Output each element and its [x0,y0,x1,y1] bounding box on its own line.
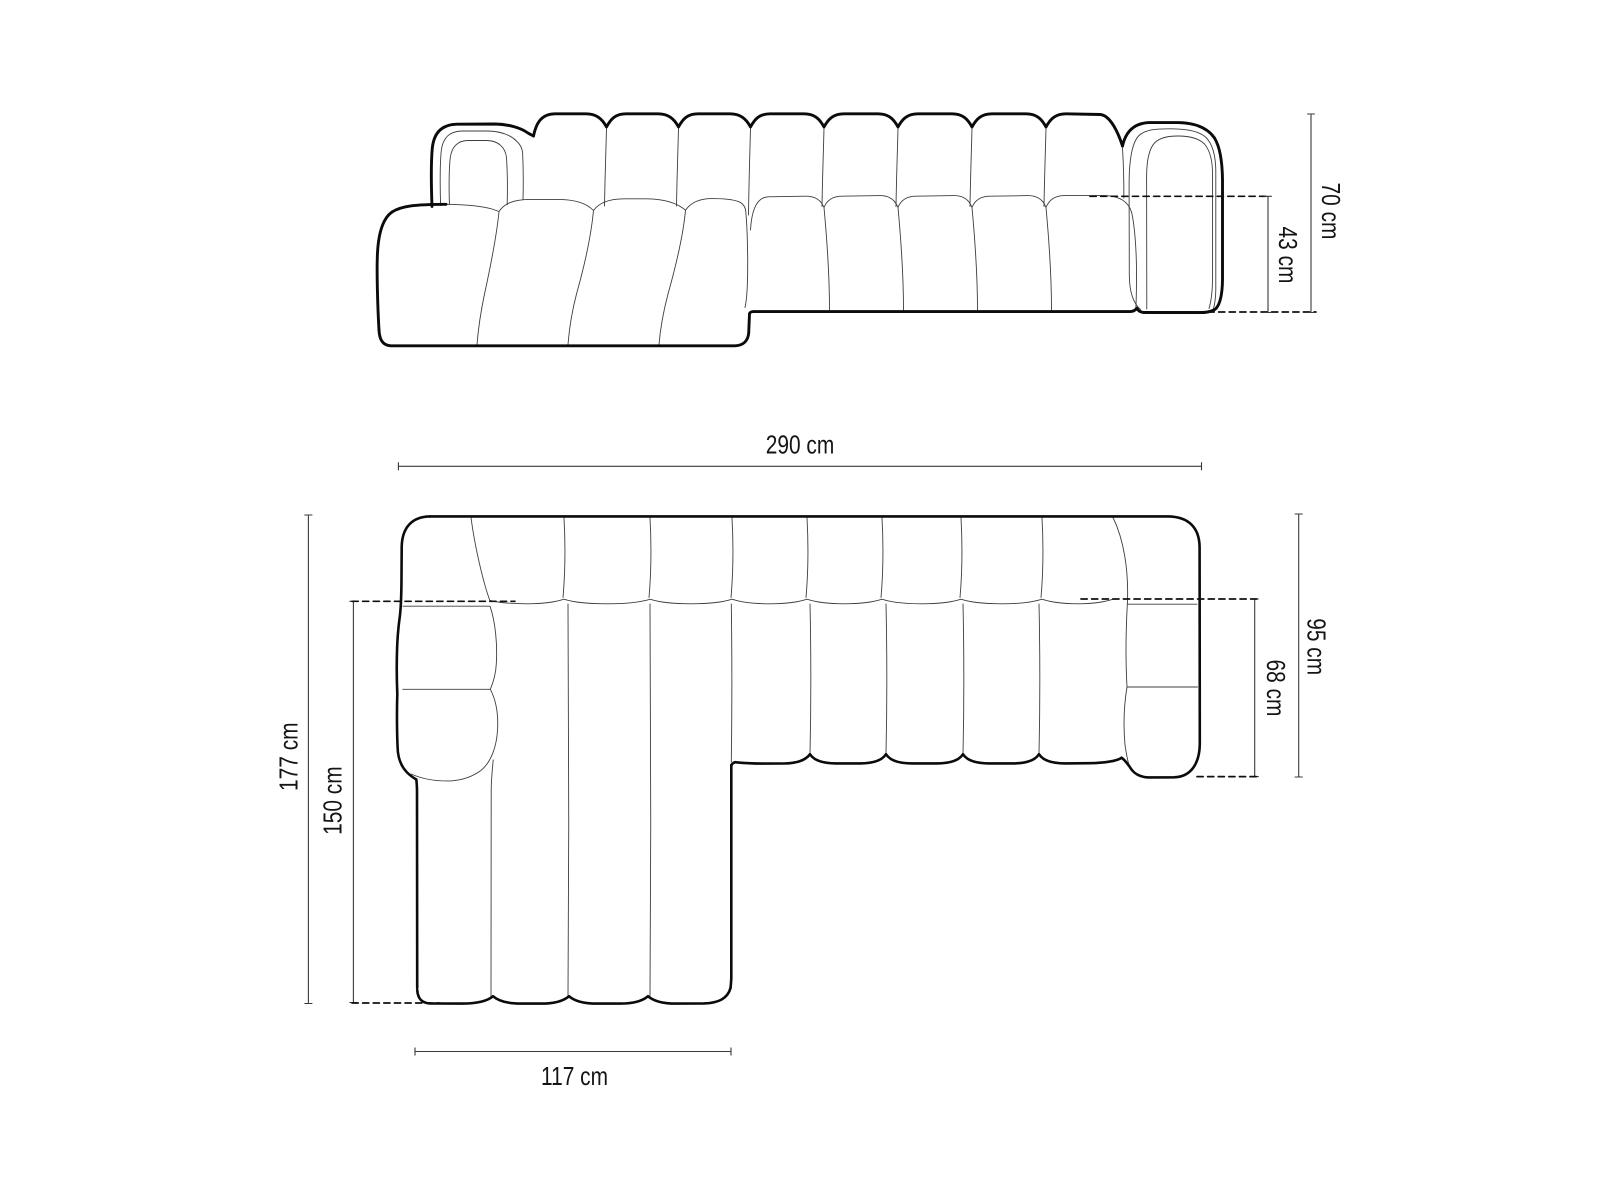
svg-text:95 cm: 95 cm [1302,618,1330,675]
svg-text:290 cm: 290 cm [766,431,835,459]
svg-text:43 cm: 43 cm [1274,227,1302,284]
svg-text:68 cm: 68 cm [1262,660,1290,717]
svg-text:177 cm: 177 cm [274,722,302,791]
svg-text:70 cm: 70 cm [1317,183,1345,240]
svg-text:150 cm: 150 cm [318,766,346,835]
svg-text:117 cm: 117 cm [541,1062,608,1090]
